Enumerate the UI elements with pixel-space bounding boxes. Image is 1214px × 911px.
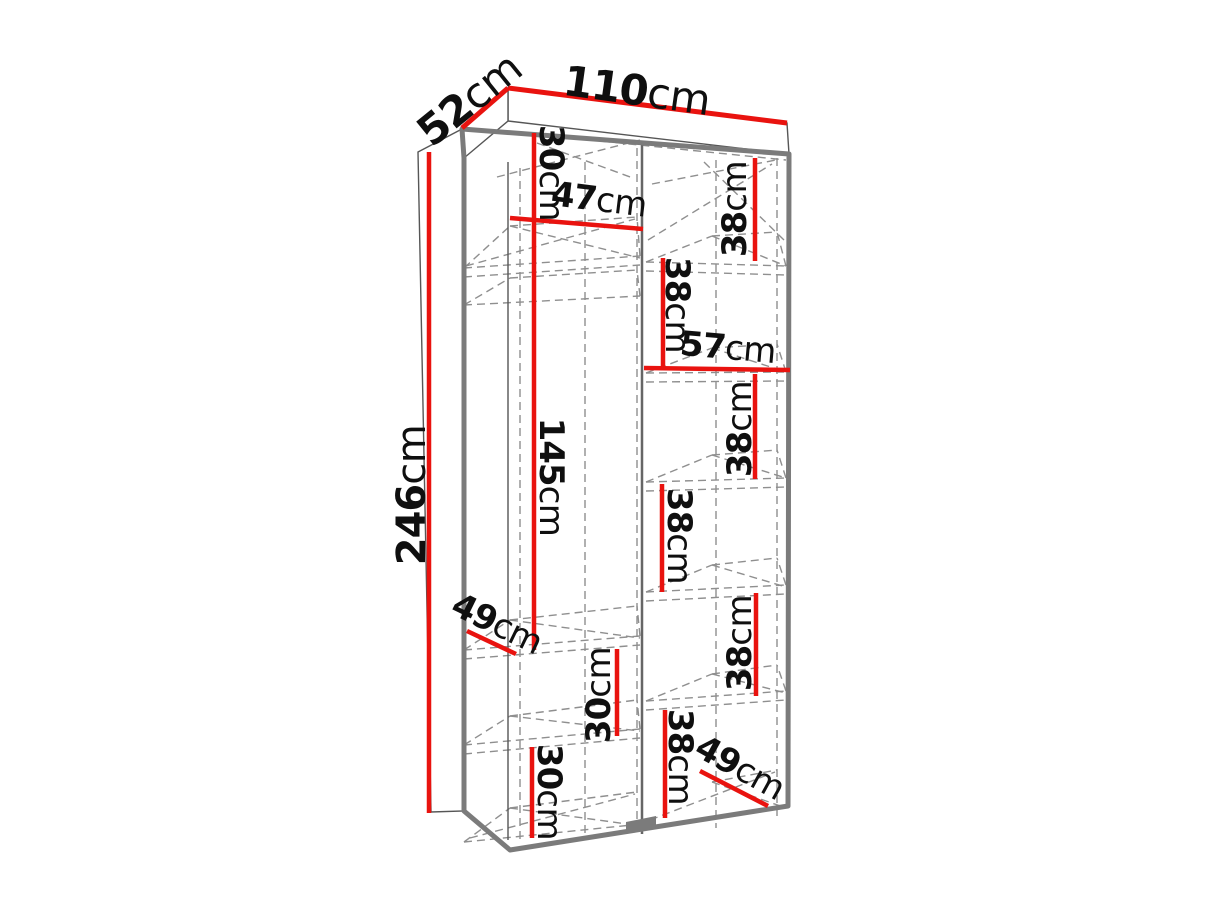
dimension-label-right-section5: 38cm (720, 595, 760, 691)
dimension-label-right-section3: 38cm (720, 381, 760, 477)
wardrobe-dimension-diagram-page: 52cm 110cm 246cm 30cm 47cm 38cm 38cm 57c… (0, 0, 1214, 911)
dimension-label-right-inner-width: 57cm (678, 324, 777, 372)
dimension-label-left-bottom-section: 30cm (529, 744, 569, 840)
dimension-label-left-hanging-section: 145cm (531, 418, 571, 537)
wardrobe-dimension-diagram: 52cm 110cm 246cm 30cm 47cm 38cm 38cm 57c… (0, 0, 1214, 911)
dimension-label-left-middle-section: 30cm (579, 647, 619, 743)
dimension-label-right-section1: 38cm (715, 161, 755, 257)
dimension-label-height: 246cm (389, 425, 435, 565)
dimension-label-right-section4: 38cm (659, 488, 699, 584)
